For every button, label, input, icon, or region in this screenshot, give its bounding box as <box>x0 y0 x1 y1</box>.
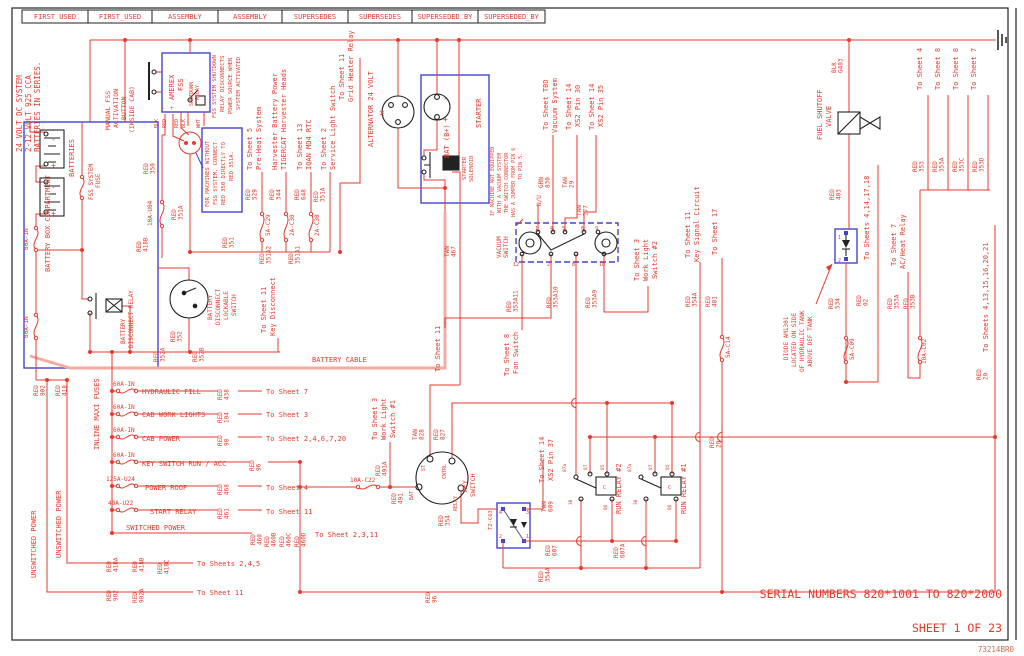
destination-label: To Sheets 4,14,17,18 <box>863 176 871 260</box>
system-note: BATTERIES IN SERIES. <box>33 62 42 152</box>
fuse-rating: 60A-IN <box>23 316 30 338</box>
junction-dot <box>110 435 114 439</box>
fuse-symbol <box>80 175 84 199</box>
label: DISCONNECT <box>215 288 222 325</box>
destination-label: To Sheet 8 <box>952 48 960 90</box>
junction-dot <box>88 350 92 354</box>
label: STARTER <box>462 156 468 180</box>
wire-label: 467 <box>451 246 458 257</box>
label: POWER SOURCE WHEN <box>228 58 234 114</box>
pin-number: CNTRL <box>442 464 448 479</box>
wire-label: 353A <box>939 157 946 172</box>
fuse-symbol <box>116 484 137 488</box>
junction-dot <box>993 435 997 439</box>
revision-header: FIRST USEDFIRST_USEDASSEMBLYASSEMBLYSUPE… <box>22 10 545 23</box>
label: RED 351A. <box>229 151 235 181</box>
battery-disconnect-relay <box>88 293 122 319</box>
wire-label: N/U <box>536 195 543 206</box>
junction-dot <box>65 378 69 382</box>
pin-number: 85 <box>665 464 671 470</box>
fuse-rating: 60A-IN <box>113 381 135 388</box>
destination-label: To Sheet 13 <box>296 124 304 170</box>
wire-label: 353 <box>919 161 926 172</box>
destination-label: To Sheet 7 <box>970 48 978 90</box>
pin-number: 85 <box>600 464 606 470</box>
wire-label: 02 <box>863 298 870 306</box>
junction-dot <box>443 186 447 190</box>
wire-label: 344 <box>276 189 283 200</box>
header-cell: SUPERSEDED_BY <box>478 10 545 23</box>
destination-label: Harvester Battery Power <box>271 73 279 170</box>
fuse-symbol <box>116 435 137 439</box>
relay-label: RUN RELAY #1 <box>680 463 688 514</box>
junction-dot <box>388 485 392 489</box>
wire-label: 352A <box>160 347 167 362</box>
destination-label: Switch #2 <box>651 241 659 279</box>
fuse-rating: 2A-C30 <box>289 214 296 236</box>
header-cell-label: ASSEMBLY <box>233 13 268 21</box>
destination-label: To Sheets 4,13,15,16,20,21 <box>982 242 990 352</box>
junction-dot <box>847 38 851 42</box>
batteries-label: BATTERIES <box>68 139 76 177</box>
wire-label: 104 <box>224 412 231 423</box>
sheet-number-note: SHEET 1 OF 23 <box>912 621 1002 635</box>
label: RED <box>162 119 168 128</box>
pin-number: 12 <box>513 262 519 268</box>
wire-label: 20 <box>983 372 990 380</box>
destination-label: To Sheet 2 <box>320 128 328 170</box>
label: FSS SYSTEM <box>88 163 95 200</box>
junction-dot <box>45 378 49 382</box>
label: DISCONNECT RELAY <box>128 290 135 348</box>
ground-symbol <box>998 30 1006 50</box>
polarity-sign: + <box>170 105 174 112</box>
destination-label: Grid Heater Relay <box>347 30 355 102</box>
polarity-sign: - <box>51 183 56 192</box>
pin-number: 87a <box>562 464 568 472</box>
fuse-symbol <box>309 212 313 241</box>
pin-number: 3 <box>526 510 529 516</box>
pin-number: 87 <box>648 464 654 470</box>
wire-label: 534 <box>835 298 842 309</box>
wire-label: 529 <box>252 189 259 200</box>
wire-label: 351A <box>178 205 185 220</box>
wire-label: 609 <box>548 501 555 512</box>
system-note: 2-12 VOLT 925 CCA <box>24 75 33 152</box>
vacuum-switch <box>519 230 617 256</box>
junction-dot <box>670 401 674 405</box>
starter-box <box>421 75 489 203</box>
label: TO PIN 5. <box>518 153 524 180</box>
fuse-symbol <box>160 200 164 227</box>
wire-label: 354A <box>692 292 699 307</box>
fuse-rating: 5A-C29 <box>265 214 272 236</box>
label: BLK <box>154 119 160 128</box>
wire-label: 352 <box>177 331 184 342</box>
label: FSS SYSTEM SHUTDOWN <box>212 55 218 118</box>
diode-t2-c63 <box>503 509 527 541</box>
polarity-sign: + <box>443 115 448 124</box>
wire-label: 418A <box>113 557 120 572</box>
label: WHT <box>196 119 202 128</box>
junction-dot <box>188 38 192 42</box>
destination-label: To Sheet 7 <box>890 224 898 266</box>
pin-number: 2 <box>547 262 550 268</box>
schematic-labels: 24 VOLT DC SYSTEM2-12 VOLT 925 CCABATTER… <box>15 30 990 603</box>
pin-number: 1 <box>535 226 538 232</box>
key-switch-label: KEY <box>461 480 469 492</box>
junction-dot <box>610 539 614 543</box>
wire-label: 468 <box>224 484 231 495</box>
destination-label: XS2 Pin 35 <box>597 85 605 127</box>
header-cell: SUPERSEDES <box>282 10 348 23</box>
destination-label: To Sheet 4 <box>266 484 308 492</box>
wire-label: 460D <box>301 532 308 547</box>
destination-label: To Sheet 11 <box>197 589 243 597</box>
label: FSS <box>177 78 185 91</box>
battery-cable <box>30 212 445 368</box>
destination-label: Vacuum System <box>551 78 559 133</box>
label: ABOVE DEF TANK <box>807 316 814 367</box>
pin-number: 30 <box>633 499 639 505</box>
circuit-name: HYDRAULIC FILL <box>142 388 201 396</box>
polarity-sign: - <box>443 94 448 103</box>
wire-label: 902 <box>40 385 47 396</box>
wire-label: 353A <box>894 294 901 309</box>
label: WITH A VACUUM SYSTEM <box>497 153 503 213</box>
circuit-name: START RELAY <box>150 508 197 516</box>
circuit-name: CAB POWER <box>142 435 181 443</box>
label: IF MACHINE NOT EQUIPPED <box>490 147 496 216</box>
blue-pins <box>501 231 848 543</box>
junction-dot <box>435 38 439 42</box>
wire-label: 418 <box>62 385 69 396</box>
junction-dot <box>80 248 84 252</box>
junction-dot <box>110 350 114 354</box>
header-cell: SUPERSEDED BY <box>412 10 478 23</box>
destination-label: Work Light <box>380 398 388 440</box>
destination-label: Pre-Heat System <box>255 107 263 170</box>
destination-label: To Sheet 17 <box>711 209 719 255</box>
pin-number: RELAY <box>453 496 459 511</box>
wire-label: 481 <box>712 296 719 307</box>
destination-label: To Sheet 11 <box>338 54 346 100</box>
header-cell: FIRST USED <box>22 10 88 23</box>
vacuum-switch-label: SWITCH <box>503 236 510 258</box>
pin-number: 2 <box>838 258 841 264</box>
fuse-symbol <box>116 389 137 393</box>
wire-label: 461 <box>224 508 231 519</box>
run-relay-1 <box>639 472 681 501</box>
junction-dot <box>110 389 114 393</box>
label: BLK <box>181 119 187 128</box>
junction-dot <box>110 484 114 488</box>
pin-number: 86 <box>667 504 673 510</box>
battery-cable-label: BATTERY CABLE <box>312 356 367 364</box>
pin-number: C <box>668 485 671 491</box>
junction-dot <box>457 38 461 42</box>
header-cell: ASSEMBLY <box>152 10 218 23</box>
circuit-name: POWER ROOF <box>145 484 187 492</box>
destination-label: To Sheets 2,4,5 <box>197 560 260 568</box>
destination-label: TIGERCAT Harvester Heads <box>280 69 288 170</box>
header-cell: ASSEMBLY <box>218 10 282 23</box>
destination-label: To Sheet 14 <box>538 437 546 483</box>
wire-label: 29 <box>569 180 576 188</box>
header-cell: SUPERSEDES <box>348 10 412 23</box>
label: SWITCH <box>231 294 238 316</box>
fuse-symbol <box>720 335 724 361</box>
manual-fss-button <box>149 62 156 100</box>
destination-label: To Sheet 3 <box>371 398 379 440</box>
destination-label: To Sheet 11 <box>434 326 442 372</box>
wire-label: 403 <box>836 189 843 200</box>
wire-label: 418B <box>139 557 146 572</box>
wire-label: 352B <box>199 347 206 362</box>
wire-label: 351A1 <box>295 246 302 264</box>
polarity-sign: + <box>51 161 56 170</box>
fuse-symbol <box>116 508 137 512</box>
fuse-symbol <box>34 226 38 251</box>
wire-label: 902A <box>139 588 146 603</box>
fuse-rating: 5A-C14 <box>725 336 732 358</box>
label: LOCKABLE <box>223 291 230 320</box>
wire-label: 96 <box>432 595 439 603</box>
wire-label: 607 <box>552 545 559 556</box>
label: HAS A JUMPER FROM PIN 6 <box>511 148 517 217</box>
header-cell-label: SUPERSEDES <box>359 13 401 21</box>
wire-label: 648 <box>301 189 308 200</box>
label: INLINE MAXI FUSES <box>93 378 101 450</box>
pin-number: 30 <box>568 499 574 505</box>
pin-number: 10 <box>599 262 605 268</box>
fuse-rating: 60A-IN <box>113 404 135 411</box>
junction-dot <box>184 141 188 145</box>
destination-label: XS2 Pin 30 <box>574 85 582 127</box>
junction-dot <box>844 380 848 384</box>
destination-label: To Sheet 2,3,11 <box>315 531 378 539</box>
document-number: 73214BR0 <box>978 645 1015 654</box>
label: BUTTON <box>120 96 128 120</box>
junction-dot <box>605 401 609 405</box>
destination-label: To Sheet 8 <box>934 48 942 90</box>
wire-label: 902 <box>113 590 120 601</box>
fuse-rating: 5A-C09 <box>849 338 856 360</box>
destination-label: Work Light <box>642 239 650 281</box>
wire-label: 460B <box>271 532 278 547</box>
circuit-name: SWITCHED POWER <box>126 524 186 532</box>
destination-label: To Sheet 7 <box>266 388 308 396</box>
wire-label: 96 <box>256 463 263 471</box>
diode-label: T2-C63 <box>488 510 494 530</box>
pin-number: 1 <box>526 534 529 540</box>
polarity-sign: + <box>51 209 56 218</box>
fuse-rating: 10A-U04 <box>147 200 154 226</box>
fuse-rating: 60A-IN <box>23 228 30 250</box>
pin-number: 86 <box>603 504 609 510</box>
label: BATTERY <box>207 294 214 320</box>
wire-label: 353D <box>979 157 986 172</box>
header-cell-label: FIRST USED <box>34 13 76 21</box>
wire-label: 353B <box>910 294 917 309</box>
fuse-rating: 10A-C02 <box>921 338 928 364</box>
fuse-rating: 40A-U22 <box>108 500 134 507</box>
pin-number: 9 <box>595 226 598 232</box>
destination-label: To Sheet TBD <box>542 79 550 130</box>
wire-label: 353A10 <box>553 286 560 308</box>
junction-dot <box>110 460 114 464</box>
label: RED 350 DIRECTLY TO <box>221 142 227 205</box>
label: BATTERY <box>120 318 127 344</box>
fuse-symbol <box>260 212 264 241</box>
wire-label: 351A <box>320 187 327 202</box>
destination-label: To Sheet 4 <box>916 48 924 90</box>
key-switch-label: SWITCH <box>469 473 477 497</box>
destination-label: XS2 Pin 37 <box>547 439 555 481</box>
wire-label: 827 <box>440 429 447 440</box>
fuse-rating: 2A-C30 <box>314 214 321 236</box>
label: OF HYDRAULIC TANK <box>799 310 806 372</box>
wire-label: 418B <box>143 237 150 252</box>
label: RED <box>174 119 180 128</box>
pin-number: 1 <box>838 235 841 241</box>
pin-number: 8 <box>572 262 575 268</box>
label: SOLENOID <box>469 156 475 183</box>
label: RELAY <box>195 85 201 100</box>
junction-dot <box>192 141 196 145</box>
junction-dot <box>653 435 657 439</box>
label: ACTIVATION <box>112 89 120 128</box>
wire-label: G403 <box>838 58 845 73</box>
destination-label: To Sheet 14 <box>588 84 596 130</box>
fuse-rating: 125A-U24 <box>106 476 135 483</box>
fuse-symbol <box>284 212 288 241</box>
diode-leader-line <box>816 264 832 304</box>
destination-label: To Sheet 14 <box>565 84 573 130</box>
header-cell-label: SUPERSEDED BY <box>418 13 474 21</box>
wire-label: 98 <box>224 438 231 446</box>
polarity-sign: - <box>161 105 165 112</box>
label: UNSWITCHED POWER <box>30 510 38 578</box>
destination-label: To Sheet 3 <box>633 239 641 281</box>
label: DIODE AM1301 <box>783 316 790 360</box>
wire-label: 830 <box>545 177 552 188</box>
wire-label: 354A <box>545 567 552 582</box>
wire-label: 350 <box>150 163 157 174</box>
pin-number: 87 <box>583 464 589 470</box>
pin-number: 87a <box>627 464 633 472</box>
label: RELAY DISCONNECTS <box>220 56 226 112</box>
wire-label: 491A <box>382 461 389 476</box>
header-cell-label: SUPERSEDED_BY <box>484 13 540 21</box>
destination-label: Service Light Switch <box>329 86 337 170</box>
junction-dot <box>298 590 302 594</box>
starter-solenoid <box>422 152 459 178</box>
destination-label: Fan Switch <box>512 332 520 374</box>
wire-label: 353A9 <box>592 290 599 308</box>
destination-label: Key Signal Circuit <box>693 186 701 262</box>
junction-dot <box>338 250 342 254</box>
fuel-shutoff-valve <box>838 112 880 134</box>
circuit-name: KEY SWITCH RUN / ACC <box>142 460 226 468</box>
wire-label: 460 <box>257 534 264 545</box>
pin-number: 6 <box>581 226 584 232</box>
run-relay-2 <box>574 472 616 501</box>
wire-label: 828 <box>419 429 426 440</box>
label: AC <box>380 110 386 116</box>
wire-label: 351A2 <box>266 246 273 264</box>
destination-label: To Sheet 3 <box>266 411 308 419</box>
label: LOCATED ON SIDE <box>791 312 798 367</box>
wire-label: 351 <box>229 237 236 248</box>
label: FUSE <box>95 173 102 188</box>
fuse-rating: 10A-C22 <box>350 477 376 484</box>
label: FSS SYSTEM, CONNECT <box>213 141 219 205</box>
wire-label: 353A11 <box>513 290 520 312</box>
destination-label: To Sheet 2,4,6,7,20 <box>266 435 346 443</box>
valve-label: FUEL SHUTOFF <box>816 89 824 140</box>
relay-label: RUN RELAY #2 <box>615 463 623 514</box>
alternator-label: ALTERNATOR 24 VOLT <box>367 70 375 147</box>
junction-dot <box>674 539 678 543</box>
junction-dot <box>396 38 400 42</box>
destination-label: To Sheet 11 <box>684 212 692 258</box>
label: MANUAL FSS <box>104 91 112 130</box>
destination-label: IQAN MD4 RTC <box>305 119 313 170</box>
wire-label: 177 <box>583 205 590 216</box>
fuse-rating: 60A-IN <box>113 452 135 459</box>
destination-label: To Sheet 8 <box>503 334 511 376</box>
wire-label: 607A <box>620 543 627 558</box>
schematic-page: FIRST USEDFIRST_USEDASSEMBLYASSEMBLYSUPE… <box>0 0 1024 656</box>
fuse-rating: 60A-IN <box>113 427 135 434</box>
junction-dot <box>110 412 114 416</box>
label: BAT (B+) <box>443 124 451 158</box>
system-note: 24 VOLT DC SYSTEM <box>15 75 24 152</box>
label: UNSWITCHED POWER <box>55 490 63 558</box>
diode-am1301 <box>842 235 850 256</box>
pin-number: ST <box>421 465 427 471</box>
pin-number: BAT <box>409 491 415 500</box>
wire-label: 353C <box>959 157 966 172</box>
pin-number: C <box>603 485 606 491</box>
battery-disconnect-lockable-switch <box>170 280 208 318</box>
component-boxes <box>24 53 857 548</box>
fuse-symbol <box>116 460 137 464</box>
fuse-symbol <box>116 412 137 416</box>
wire-label: 491 <box>398 493 405 504</box>
wire-label: 418C <box>164 559 171 574</box>
junction-dot <box>188 250 192 254</box>
wire-label: 438 <box>224 389 231 400</box>
pin-number: 2 <box>499 534 502 540</box>
junction-dot <box>110 508 114 512</box>
header-cell-label: FIRST_USED <box>99 13 141 21</box>
junction-dot <box>588 435 592 439</box>
circuit-name: CAB WORK LIGHTS <box>142 411 205 419</box>
junction-dot <box>644 566 648 570</box>
destination-label: Key Disconnect <box>269 277 277 336</box>
vacuum-note-leader <box>517 219 523 225</box>
junction-dot <box>720 590 724 594</box>
wire-label: 20 <box>716 440 723 448</box>
pin-number: 4 <box>550 226 553 232</box>
label: (INSIDE CAB) <box>128 86 136 133</box>
schematic-canvas: FIRST USEDFIRST_USEDASSEMBLYASSEMBLYSUPE… <box>0 0 1024 656</box>
label: AMEREX <box>168 74 176 100</box>
label: SYSTEM ACTIVATED <box>236 57 242 110</box>
serial-numbers-note: SERIAL NUMBERS 820*1001 TO 820*2000 <box>760 587 1002 601</box>
